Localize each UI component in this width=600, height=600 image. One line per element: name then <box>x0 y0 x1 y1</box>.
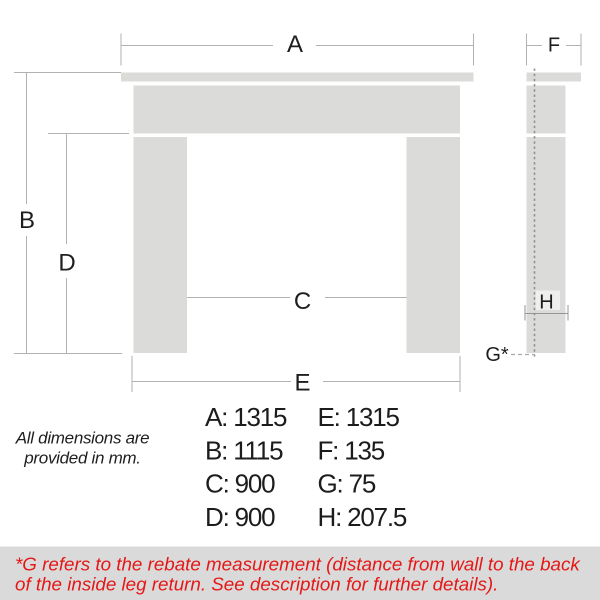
svg-text:of the inside leg return. See: of the inside leg return. See descriptio… <box>15 574 498 595</box>
svg-text:All dimensions are: All dimensions are <box>15 429 150 448</box>
svg-text:G: 75: G: 75 <box>318 469 376 499</box>
svg-text:B: B <box>19 207 35 234</box>
svg-text:C: C <box>294 288 311 315</box>
svg-text:A: 1315: A: 1315 <box>205 402 287 432</box>
svg-text:B: 1115: B: 1115 <box>205 436 283 466</box>
svg-text:D: D <box>58 250 75 277</box>
svg-text:E: 1315: E: 1315 <box>318 402 400 432</box>
svg-text:F: F <box>548 35 560 57</box>
svg-text:A: A <box>287 31 303 58</box>
svg-text:H: 207.5: H: 207.5 <box>318 502 407 532</box>
svg-text:H: H <box>539 292 553 314</box>
svg-text:G*: G* <box>485 344 509 366</box>
svg-text:*G refers to the rebate measur: *G refers to the rebate measurement (dis… <box>15 554 581 575</box>
svg-text:F: 135: F: 135 <box>318 436 385 466</box>
svg-text:D: 900: D: 900 <box>205 502 275 532</box>
svg-text:provided in mm.: provided in mm. <box>23 449 140 468</box>
svg-text:E: E <box>294 370 310 397</box>
svg-text:C: 900: C: 900 <box>205 469 275 499</box>
